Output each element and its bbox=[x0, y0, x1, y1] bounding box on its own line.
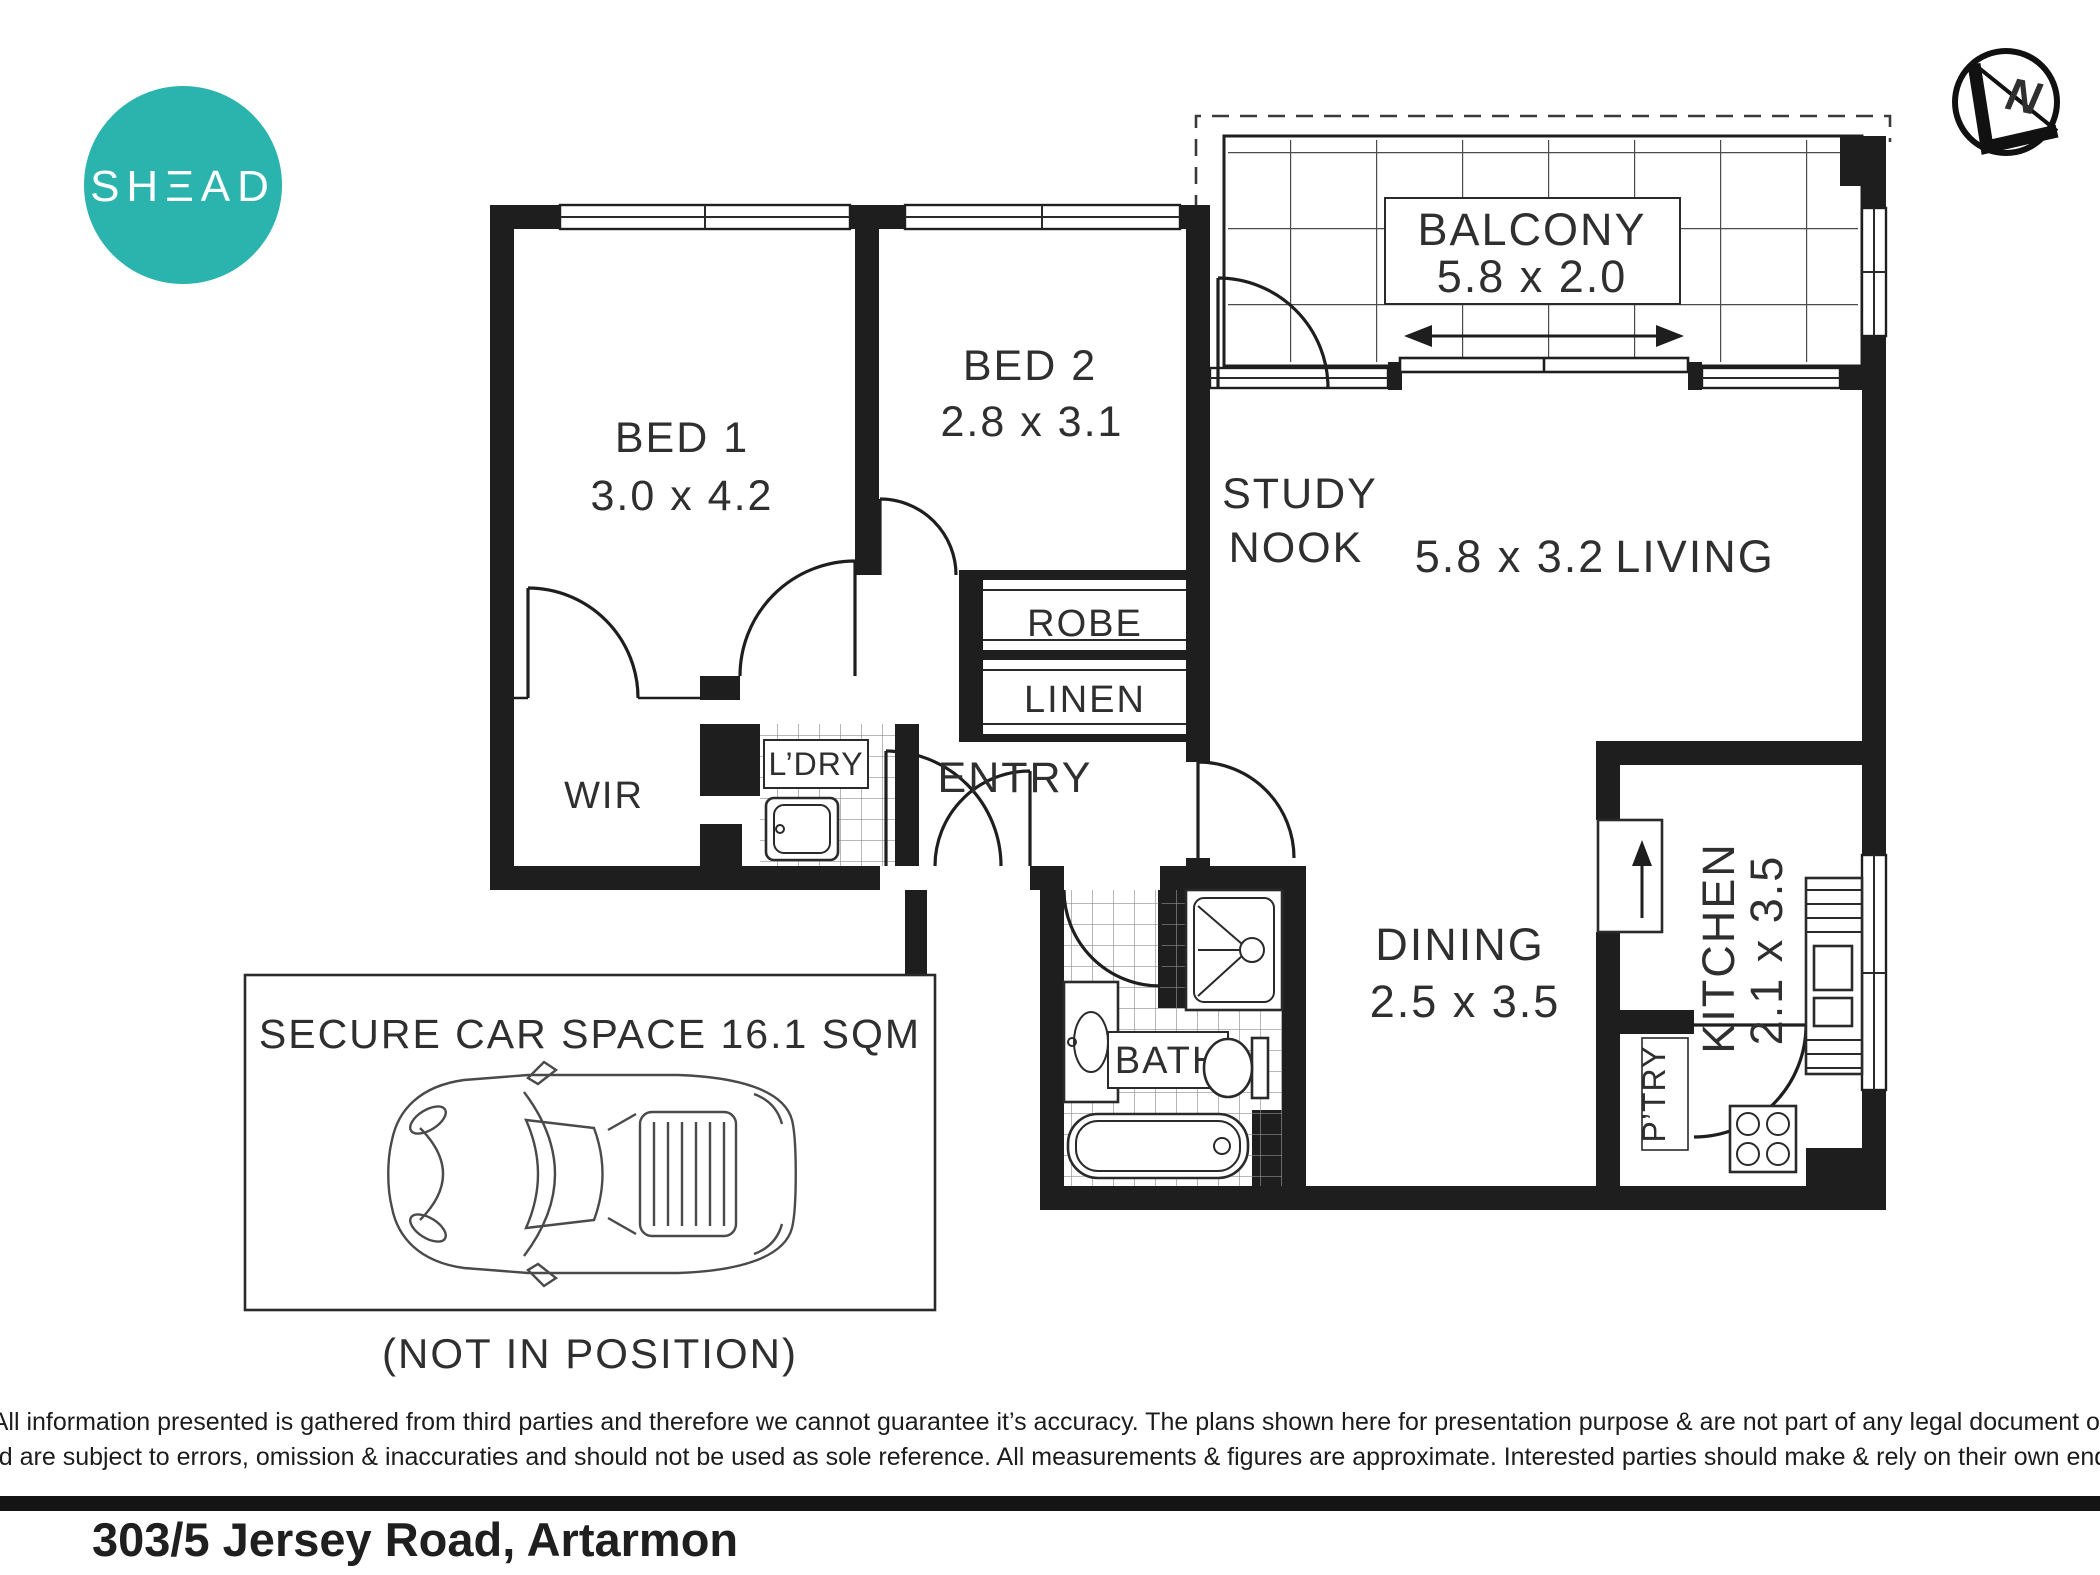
bed2-window bbox=[905, 205, 1180, 229]
car-illustration bbox=[388, 1062, 796, 1286]
living-label: LIVING bbox=[1615, 531, 1775, 582]
bed1-dims: 3.0 x 4.2 bbox=[591, 472, 774, 520]
kitchen-dims: 2.1 x 3.5 bbox=[1741, 855, 1792, 1046]
bathtub bbox=[1068, 1114, 1248, 1178]
balcony-label: BALCONY bbox=[1417, 204, 1646, 255]
linen-label: LINEN bbox=[1024, 679, 1146, 721]
study-nook-line1: STUDY bbox=[1222, 470, 1378, 518]
footer-divider-bar bbox=[0, 1496, 2100, 1511]
disclaimer-line2: title and are subject to errors, omissio… bbox=[0, 1443, 2100, 1471]
bed1-label: BED 1 bbox=[615, 414, 749, 462]
disclaimer-line1: All information presented is gathered fr… bbox=[0, 1408, 2100, 1436]
kitchen-window bbox=[1862, 855, 1886, 1090]
balcony-area: BALCONY 5.8 x 2.0 bbox=[1196, 116, 1890, 366]
car-space-note: (NOT IN POSITION) bbox=[382, 1330, 798, 1377]
bed2-label: BED 2 bbox=[963, 342, 1097, 390]
robe-label: ROBE bbox=[1027, 603, 1143, 645]
shower bbox=[1186, 890, 1282, 1010]
footer: All information presented is gathered fr… bbox=[0, 1408, 2100, 1566]
toilet bbox=[1204, 1038, 1268, 1098]
north-indicator-icon: N bbox=[1955, 51, 2057, 153]
dining-dims: 2.5 x 3.5 bbox=[1370, 976, 1561, 1027]
fridge-recess bbox=[1598, 820, 1662, 932]
bed2-door bbox=[880, 499, 956, 575]
balcony-fixed-glazing-right bbox=[1702, 368, 1840, 388]
kitchen-label: KITCHEN bbox=[1693, 842, 1744, 1054]
car-space-title: SECURE CAR SPACE 16.1 SQM bbox=[259, 1011, 921, 1057]
laundry-sink bbox=[766, 798, 838, 860]
hall-living-door bbox=[1198, 762, 1294, 858]
balcony-side-window bbox=[1862, 208, 1886, 336]
logo-text: SHΞAD bbox=[90, 162, 276, 211]
car-space: SECURE CAR SPACE 16.1 SQM (NOT IN POSITI… bbox=[245, 975, 935, 1377]
laundry-label: L’DRY bbox=[768, 746, 863, 782]
kitchen-bench bbox=[1806, 878, 1862, 1074]
floorplan-canvas: SHΞAD N BALCONY 5.8 x 2.0 bbox=[0, 0, 2100, 1575]
pantry-label: P’TRY bbox=[1636, 1046, 1672, 1143]
stove bbox=[1730, 1106, 1796, 1172]
wir-label: WIR bbox=[564, 775, 644, 817]
balcony-dims: 5.8 x 2.0 bbox=[1437, 251, 1628, 302]
floorplan-page: SHΞAD N BALCONY 5.8 x 2.0 bbox=[0, 0, 2100, 1575]
bed2-dims: 2.8 x 3.1 bbox=[941, 398, 1124, 446]
balcony-fixed-glazing-left bbox=[1210, 368, 1388, 388]
study-nook-line2: NOOK bbox=[1229, 524, 1364, 572]
shead-logo: SHΞAD bbox=[84, 86, 282, 284]
bed1-door bbox=[740, 561, 855, 676]
entry-label: ENTRY bbox=[938, 754, 1093, 802]
bed1-window bbox=[560, 205, 850, 229]
dining-label: DINING bbox=[1375, 919, 1545, 970]
address: 303/5 Jersey Road, Artarmon bbox=[92, 1513, 738, 1566]
wir-door bbox=[528, 588, 638, 698]
living-dims: 5.8 x 3.2 bbox=[1415, 531, 1606, 582]
